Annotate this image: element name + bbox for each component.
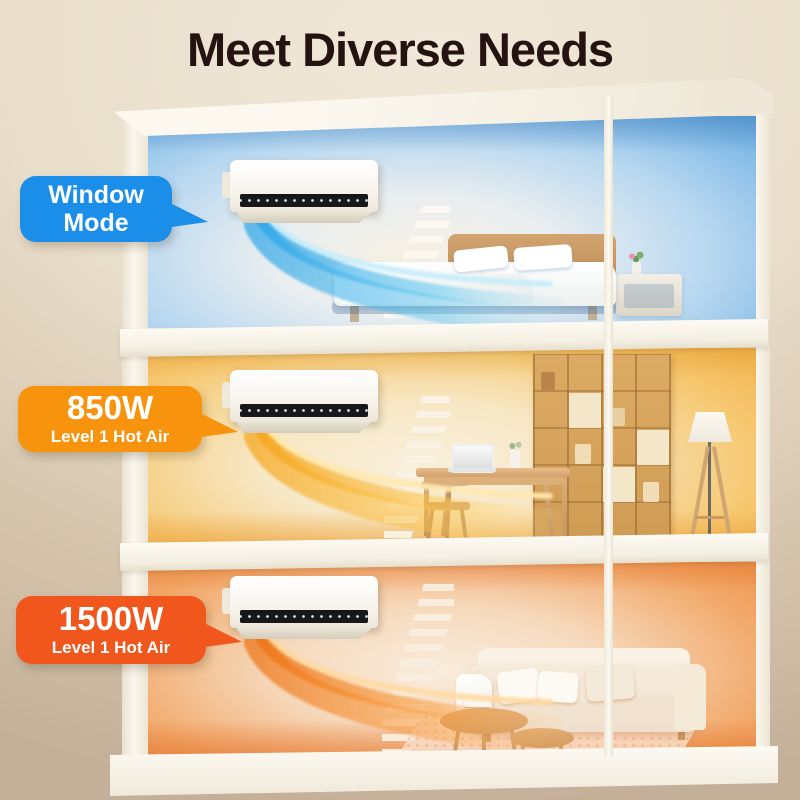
shelf-decor [575,444,591,464]
heater-vent [236,422,372,433]
heater-vent [236,628,372,639]
floor-lamp-bar [696,516,724,519]
house-frame-right [756,94,770,756]
heater-unit-1500w [230,576,378,650]
callout-window-mode-line2: Mode [20,209,172,237]
heater-unit-850w [230,370,378,444]
nightstand [616,274,682,316]
callout-window-mode: Window Mode [20,176,172,242]
heater-led-display [240,194,368,207]
hot-airflow [244,634,574,752]
floor-lamp-pole [708,442,711,538]
heater-unit-window-mode [230,160,378,234]
warm-airflow [244,428,574,546]
sofa-armrest [674,664,706,730]
house-cutaway [118,78,770,792]
heater-led-display [240,610,368,623]
shelf-cell [637,430,669,465]
callout-850w-sub: Level 1 Hot Air [18,427,202,447]
shelf-cell [569,393,601,428]
callout-window-mode-line1: Window [20,181,172,209]
callout-850w: 850W Level 1 Hot Air [18,386,202,452]
callout-1500w-sub: Level 1 Hot Air [16,638,206,658]
house-corner-post [604,96,613,756]
callout-850w-power: 850W [18,391,202,426]
shelf-decor [611,408,625,426]
flower-vase [626,250,646,276]
page-title: Meet Diverse Needs [0,22,800,77]
heater-led-display [240,404,368,417]
shelf-decor [643,482,659,502]
callout-1500w: 1500W Level 1 Hot Air [16,596,206,664]
callout-1500w-power: 1500W [16,602,206,637]
shelf-decor [541,372,555,390]
heater-vent [236,212,372,223]
